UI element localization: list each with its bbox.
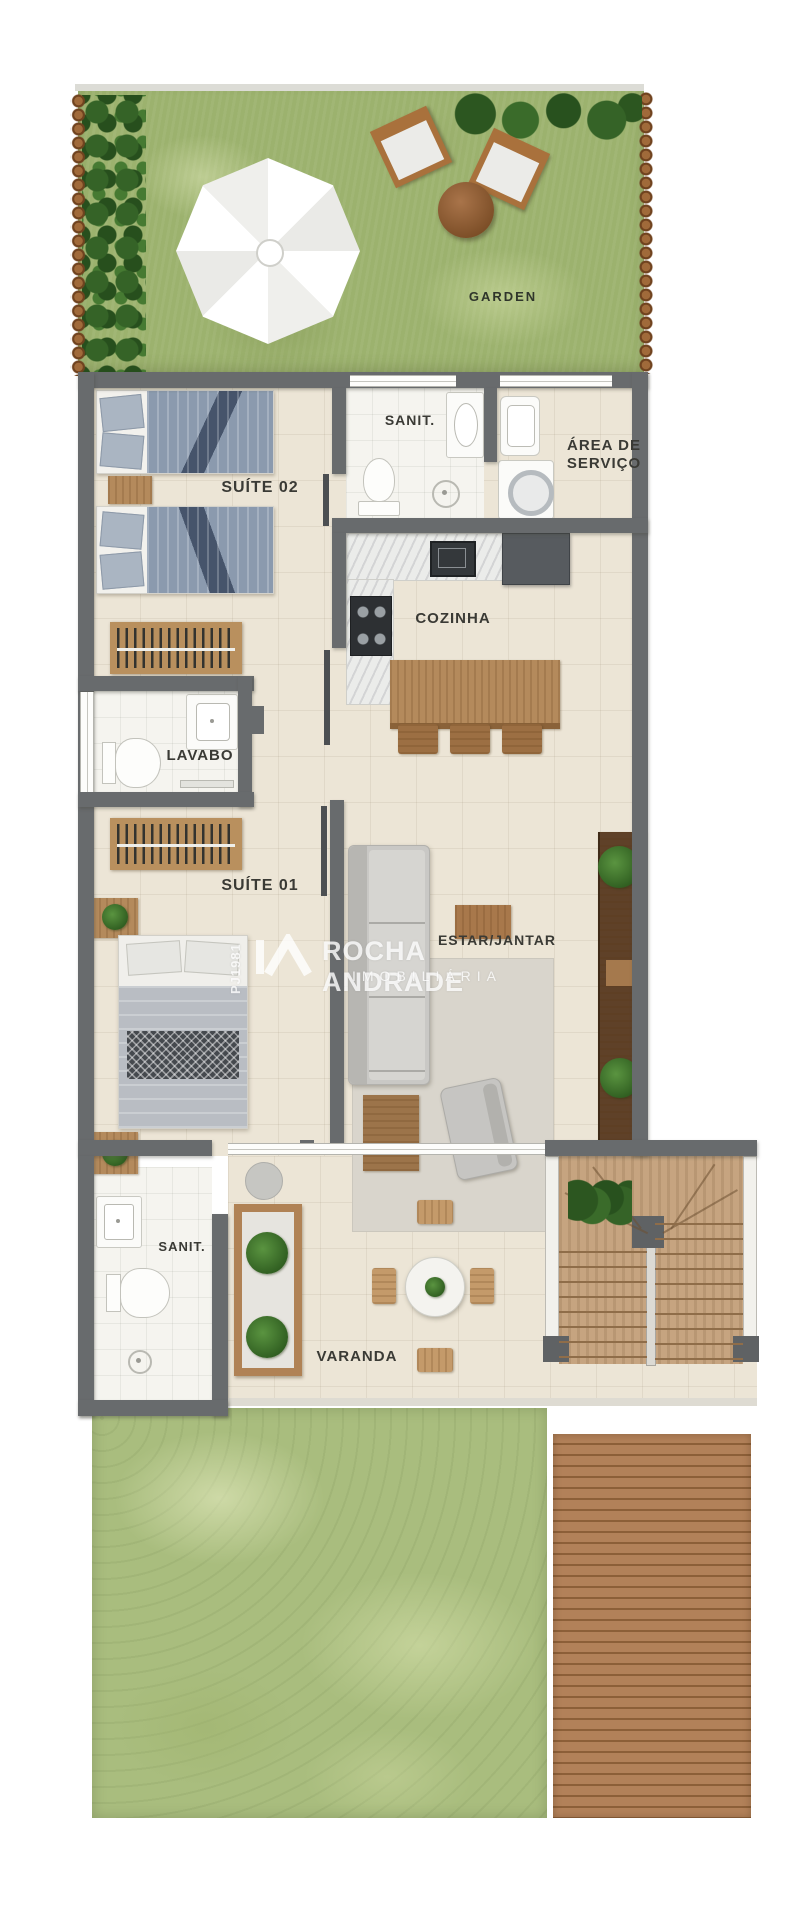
window-top-2: [500, 375, 612, 387]
garden-hedge: [82, 95, 146, 374]
sanit-top-shower-drain: [432, 480, 460, 508]
watermark-logo: [254, 934, 318, 978]
washing-machine-door: [508, 470, 554, 516]
stair-flight-left: [559, 1238, 647, 1364]
sliding-glass-door: [228, 1143, 545, 1155]
sanitb-toilet: [106, 1268, 170, 1316]
wall-lavabo-bottom: [78, 792, 254, 807]
porch-edge: [228, 1398, 757, 1406]
laundry-tank-sink: [500, 396, 540, 456]
varanda-chair-left: [372, 1268, 396, 1304]
sanitb-shower-drain: [128, 1350, 152, 1374]
kitchen-dark-counter: [502, 533, 570, 585]
door-corridor: [324, 650, 330, 745]
sanitb-toilet-bowl: [120, 1268, 170, 1318]
sanit-top-toilet: [358, 458, 398, 514]
island-stool-3: [502, 724, 542, 754]
floor-plan: GARDEN SUÍTE 02: [0, 0, 803, 1920]
garden-log-border-left: [70, 94, 87, 376]
kitchen-stove: [350, 596, 392, 656]
wall-bottom-left: [78, 1140, 212, 1156]
suite01-pillow-a: [126, 940, 182, 976]
suite01-throw-blanket: [127, 1031, 239, 1079]
pier-lavabo-door: [252, 706, 264, 734]
varanda-bench-plant-1: [246, 1232, 288, 1274]
area-servico-label-line2: SERVIÇO: [554, 455, 654, 472]
suite02-wardrobe-rail: [117, 648, 235, 651]
varanda-table-centerpiece: [425, 1277, 445, 1297]
suite02-bed-2-pillow-a: [100, 511, 145, 550]
island-stool-1: [398, 724, 438, 754]
garden-label: GARDEN: [443, 289, 563, 304]
wall-stair-top: [545, 1140, 757, 1156]
backyard-deck: [553, 1434, 751, 1818]
suite02-wardrobe: [110, 622, 242, 674]
window-left-lavabo: [80, 692, 94, 792]
area-servico-label-line1: ÁREA DE: [554, 437, 654, 454]
garden-bushes: [446, 86, 642, 148]
wall-kitchen-vertical: [332, 533, 346, 648]
indoor-bush: [568, 1176, 632, 1230]
varanda-label: VARANDA: [297, 1348, 417, 1365]
sanitb-sink: [96, 1196, 142, 1248]
wall-lavabo-right: [238, 676, 252, 807]
watermark-code: PJ1981: [228, 936, 246, 994]
suite01-plant-top: [102, 904, 128, 930]
wall-sanit-area-divider: [484, 388, 497, 462]
kitchen-sink: [430, 541, 476, 577]
lavabo-sink-counter: [186, 694, 238, 750]
washing-machine: [498, 460, 554, 520]
lavabo-toilet-tank: [102, 742, 116, 784]
suite02-bed-1: [96, 390, 274, 474]
dining-island-table: [390, 660, 560, 729]
suite01-side-table-top: [92, 898, 138, 938]
wall-sanit-left: [332, 388, 346, 474]
suite02-bed-2-pillow-b: [100, 551, 145, 590]
suite02-bed-1-duvet: [147, 391, 273, 473]
sanit-bottom-label: SANIT.: [140, 1239, 224, 1254]
island-stool-2: [450, 724, 490, 754]
stair-rail-left: [545, 1156, 559, 1344]
suite01-label: SUÍTE 01: [195, 877, 325, 895]
wall-kitchen-horizontal: [332, 518, 648, 533]
watermark-name: ROCHA ANDRADE: [322, 936, 562, 998]
suite02-bed-2-duvet: [147, 507, 273, 593]
suite02-bed-1-pillow-b: [100, 432, 145, 470]
varanda-chair-right: [470, 1268, 494, 1304]
garden-table: [438, 182, 494, 238]
sanitb-toilet-tank: [106, 1274, 121, 1312]
varanda-table: [405, 1257, 465, 1317]
suite01-wardrobe: [110, 818, 242, 870]
sanit-top-toilet-tank: [358, 501, 400, 516]
sanitb-wall-bottom: [78, 1400, 228, 1416]
varanda-pouf: [245, 1162, 283, 1200]
watermark-subtitle: IMOBILIÁRIA: [352, 968, 542, 984]
varanda-chair-bottom: [417, 1348, 453, 1372]
sanitb-wall-left: [78, 1156, 94, 1416]
sanit-top-label: SANIT.: [360, 412, 460, 428]
suite01-wardrobe-rail: [117, 844, 235, 847]
parasol-pole: [256, 239, 284, 267]
backyard-lawn: [92, 1408, 547, 1818]
side-wood-table: [363, 1095, 419, 1171]
suite02-bed-2: [96, 506, 274, 594]
stair-flight-right: [655, 1210, 743, 1364]
kitchen-counter-top: [346, 533, 504, 581]
suite02-label: SUÍTE 02: [195, 479, 325, 497]
cozinha-label: COZINHA: [393, 610, 513, 627]
window-top-1: [350, 375, 456, 387]
varanda-bench: [234, 1204, 302, 1376]
varanda-bench-plant-2: [246, 1316, 288, 1358]
lavabo-towel-bar: [180, 780, 234, 788]
lavabo-label: LAVABO: [145, 747, 255, 764]
sanit-top-toilet-bowl: [363, 458, 395, 502]
suite02-nightstand: [108, 476, 152, 504]
wall-right: [632, 372, 648, 1156]
wall-lavabo-top: [78, 676, 254, 691]
varanda-chair-top: [417, 1200, 453, 1224]
stair-rail-right: [743, 1156, 757, 1344]
suite02-bed-1-pillow-a: [99, 394, 144, 432]
